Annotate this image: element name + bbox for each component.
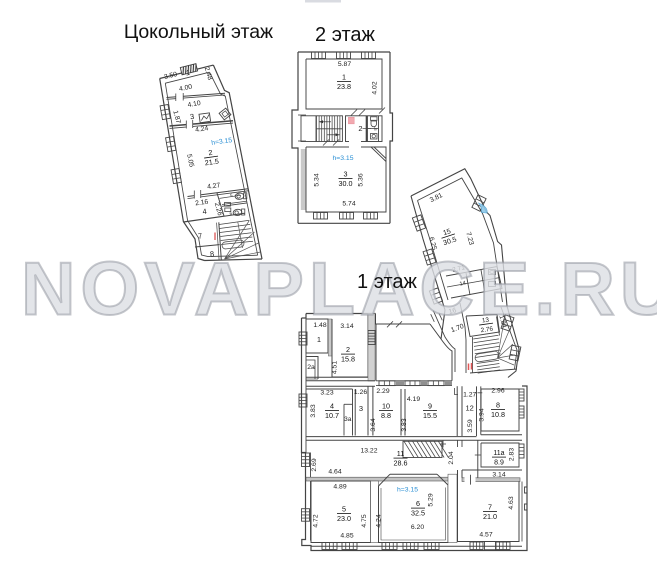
- svg-text:3.23: 3.23: [320, 390, 333, 397]
- svg-text:h=3.15: h=3.15: [333, 155, 354, 162]
- svg-text:9: 9: [428, 402, 432, 411]
- svg-text:3.83: 3.83: [401, 418, 408, 431]
- svg-text:5: 5: [342, 505, 346, 514]
- svg-text:2.04: 2.04: [448, 451, 455, 464]
- svg-text:21.0: 21.0: [483, 512, 497, 521]
- svg-text:4.63: 4.63: [508, 496, 515, 509]
- svg-text:1: 1: [342, 73, 346, 82]
- svg-text:4: 4: [330, 402, 334, 411]
- svg-text:11: 11: [397, 449, 404, 458]
- svg-text:2: 2: [358, 124, 362, 133]
- svg-text:7: 7: [488, 503, 492, 512]
- svg-text:4.24: 4.24: [376, 514, 383, 527]
- svg-text:32.5: 32.5: [411, 509, 425, 518]
- svg-text:2.96: 2.96: [491, 388, 504, 395]
- svg-text:3.64: 3.64: [370, 418, 377, 431]
- svg-text:8: 8: [496, 401, 500, 410]
- svg-text:13.22: 13.22: [360, 448, 377, 455]
- svg-text:3a: 3a: [344, 416, 352, 423]
- svg-text:2.69: 2.69: [311, 458, 318, 471]
- svg-text:5.36: 5.36: [358, 173, 365, 186]
- svg-text:10: 10: [382, 402, 390, 411]
- svg-text:23.0: 23.0: [337, 514, 351, 523]
- svg-text:3.83: 3.83: [310, 404, 317, 417]
- svg-text:15.8: 15.8: [341, 355, 355, 364]
- svg-text:2.29: 2.29: [376, 388, 389, 395]
- svg-text:5.34: 5.34: [314, 173, 321, 186]
- svg-text:2 этаж: 2 этаж: [315, 24, 376, 46]
- svg-text:4.75: 4.75: [361, 514, 368, 527]
- svg-text:8.8: 8.8: [381, 411, 391, 420]
- svg-text:23.8: 23.8: [337, 82, 351, 91]
- svg-text:3.59: 3.59: [467, 419, 474, 432]
- svg-text:5.29: 5.29: [428, 493, 435, 506]
- svg-text:4.85: 4.85: [340, 533, 353, 540]
- svg-text:4.72: 4.72: [313, 514, 320, 527]
- svg-text:4.02: 4.02: [372, 81, 379, 94]
- svg-text:28.6: 28.6: [394, 459, 408, 468]
- svg-text:1.27: 1.27: [463, 392, 476, 399]
- svg-text:3: 3: [359, 404, 363, 413]
- svg-text:5.74: 5.74: [342, 201, 355, 208]
- svg-text:10.8: 10.8: [491, 410, 505, 419]
- svg-text:11a: 11a: [493, 450, 504, 457]
- svg-text:8.9: 8.9: [494, 460, 504, 467]
- svg-text:NOVAPLACE.RU: NOVAPLACE.RU: [21, 247, 657, 331]
- svg-text:4.64: 4.64: [328, 469, 341, 476]
- svg-text:2: 2: [346, 345, 350, 354]
- svg-text:15.5: 15.5: [423, 411, 437, 420]
- svg-text:4.57: 4.57: [479, 532, 492, 539]
- svg-text:Цокольный этаж: Цокольный этаж: [124, 21, 273, 43]
- svg-text:4.51: 4.51: [332, 361, 339, 374]
- svg-text:1 этаж: 1 этаж: [357, 271, 418, 293]
- svg-text:3.94: 3.94: [479, 408, 486, 421]
- svg-text:2a: 2a: [307, 364, 315, 371]
- svg-text:h=3.15: h=3.15: [397, 487, 418, 494]
- svg-text:4.89: 4.89: [333, 484, 346, 491]
- svg-text:1.26: 1.26: [354, 389, 367, 396]
- svg-text:4.19: 4.19: [407, 396, 420, 403]
- svg-text:12: 12: [466, 404, 474, 413]
- svg-text:5.87: 5.87: [338, 61, 351, 68]
- svg-text:6.20: 6.20: [411, 524, 424, 531]
- svg-text:6: 6: [416, 499, 420, 508]
- svg-text:30.0: 30.0: [339, 179, 353, 188]
- svg-text:2.83: 2.83: [509, 448, 516, 461]
- svg-text:3: 3: [344, 170, 348, 179]
- svg-text:10.7: 10.7: [325, 411, 339, 420]
- svg-text:3.14: 3.14: [492, 472, 505, 479]
- svg-text:1: 1: [317, 335, 321, 344]
